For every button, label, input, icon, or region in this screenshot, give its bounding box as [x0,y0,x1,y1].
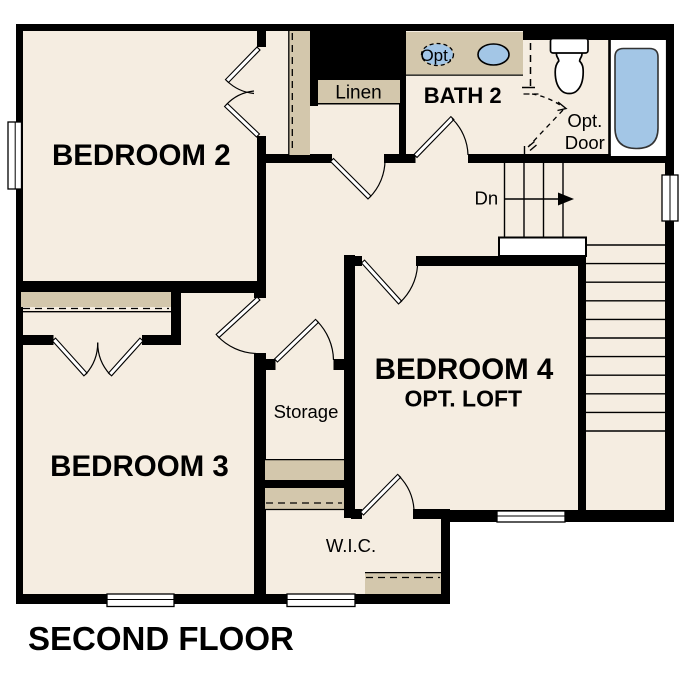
svg-text:Linen: Linen [335,83,382,104]
svg-text:BATH 2: BATH 2 [424,83,502,108]
svg-text:Door: Door [565,132,605,153]
svg-text:OPT. LOFT: OPT. LOFT [405,386,523,412]
svg-text:Opt.: Opt. [420,46,452,65]
svg-text:Storage: Storage [274,401,339,422]
svg-text:BEDROOM 3: BEDROOM 3 [50,450,229,483]
svg-text:BEDROOM 4: BEDROOM 4 [375,353,554,386]
svg-text:BEDROOM 2: BEDROOM 2 [52,139,231,172]
svg-text:Dn: Dn [475,188,499,209]
svg-text:Opt.: Opt. [567,110,602,131]
svg-text:W.I.C.: W.I.C. [326,535,376,556]
svg-text:SECOND FLOOR: SECOND FLOOR [28,620,294,657]
